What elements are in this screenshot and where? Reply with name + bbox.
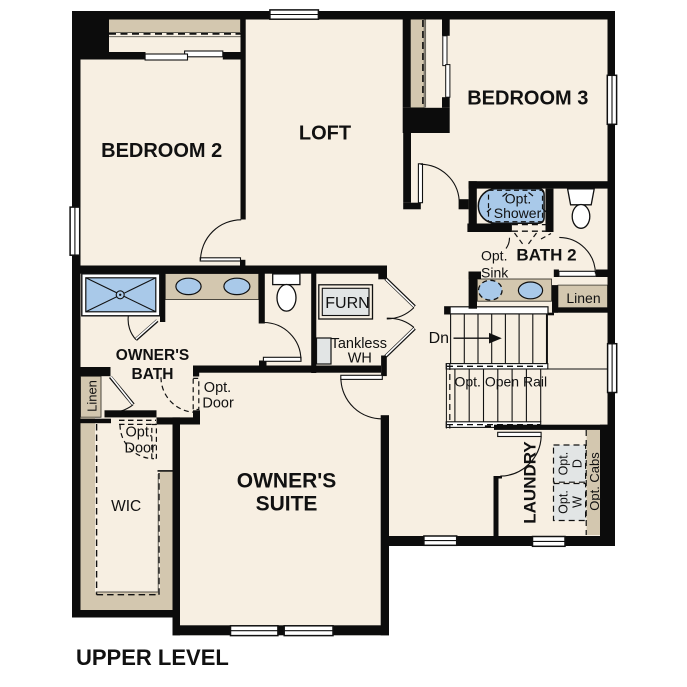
svg-text:W: W <box>571 496 585 508</box>
svg-text:WIC: WIC <box>111 498 141 515</box>
svg-text:OWNER'S: OWNER'S <box>237 470 337 493</box>
svg-text:BEDROOM 3: BEDROOM 3 <box>467 88 588 110</box>
svg-text:OWNER'S: OWNER'S <box>116 347 189 364</box>
svg-text:Shower: Shower <box>494 205 542 221</box>
svg-text:LAUNDRY: LAUNDRY <box>521 441 540 524</box>
svg-text:D: D <box>571 459 585 468</box>
svg-text:Opt.: Opt. <box>557 452 571 476</box>
svg-text:Opt.: Opt. <box>204 380 231 396</box>
svg-text:Opt.: Opt. <box>125 425 152 441</box>
svg-text:Opt.: Opt. <box>557 490 571 514</box>
svg-text:WH: WH <box>348 350 372 366</box>
svg-text:BATH 2: BATH 2 <box>516 245 576 264</box>
svg-text:Door: Door <box>202 396 234 412</box>
svg-text:Dn: Dn <box>429 330 449 347</box>
svg-text:SUITE: SUITE <box>256 493 318 516</box>
svg-text:FURN: FURN <box>325 295 369 312</box>
svg-text:Opt.: Opt. <box>481 247 507 263</box>
svg-text:BEDROOM 2: BEDROOM 2 <box>101 140 222 162</box>
svg-text:UPPER LEVEL: UPPER LEVEL <box>76 645 229 670</box>
svg-text:Linen: Linen <box>566 290 600 306</box>
svg-text:Door: Door <box>124 441 156 457</box>
svg-text:Linen: Linen <box>85 380 100 412</box>
svg-text:Opt. Cabs: Opt. Cabs <box>587 452 602 511</box>
svg-text:Opt. Open Rail: Opt. Open Rail <box>454 374 547 390</box>
svg-text:Sink: Sink <box>481 265 509 281</box>
svg-text:LOFT: LOFT <box>299 123 351 145</box>
svg-text:BATH: BATH <box>132 366 174 383</box>
